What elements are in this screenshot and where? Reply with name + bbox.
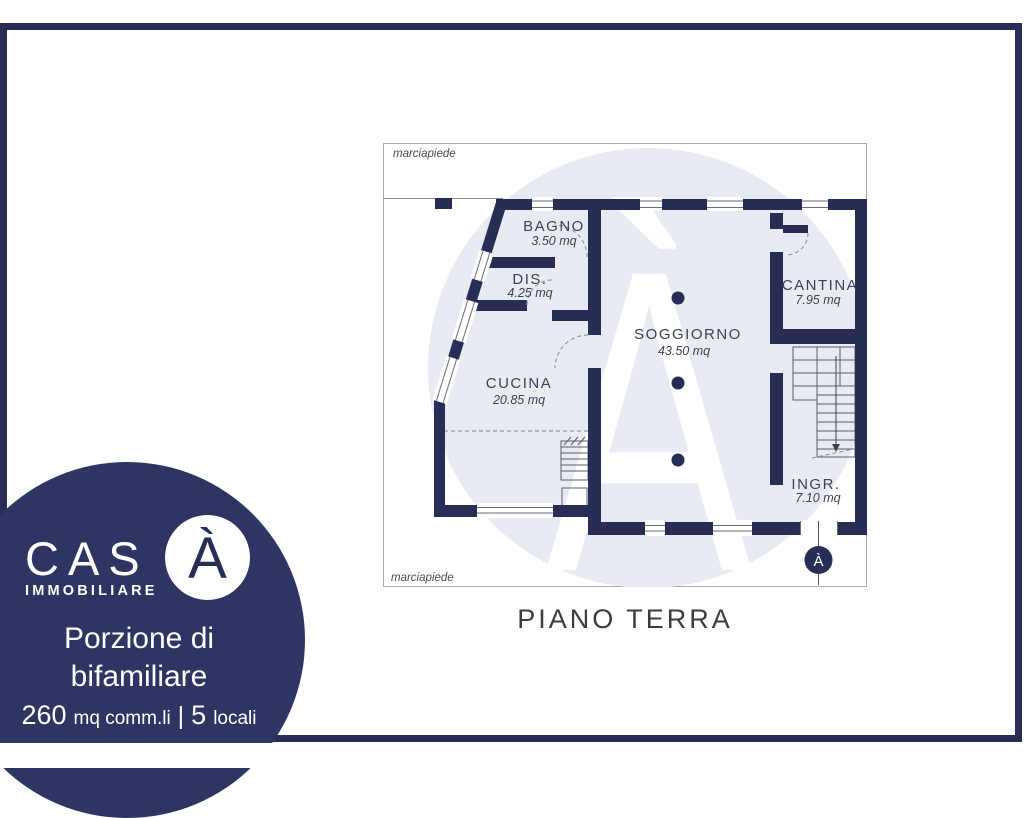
property-specs: 260 mq comm.li | 5 locali xyxy=(0,700,278,731)
specs-area-value: 260 xyxy=(21,700,66,731)
logo-accent-circle: À xyxy=(165,515,250,600)
bottom-margin xyxy=(0,743,1024,768)
logo-brand-text: CAS xyxy=(25,531,149,586)
property-type-line2: bifamiliare xyxy=(0,660,278,694)
logo-subtitle: IMMOBILIARE xyxy=(25,583,158,599)
specs-area-unit: mq comm.li xyxy=(74,708,171,730)
specs-rooms-unit: locali xyxy=(213,708,256,730)
property-type-line1: Porzione di xyxy=(0,622,278,656)
specs-rooms-value: 5 xyxy=(191,700,206,731)
logo-accent-letter: À xyxy=(188,515,227,603)
specs-separator: | xyxy=(178,702,185,731)
